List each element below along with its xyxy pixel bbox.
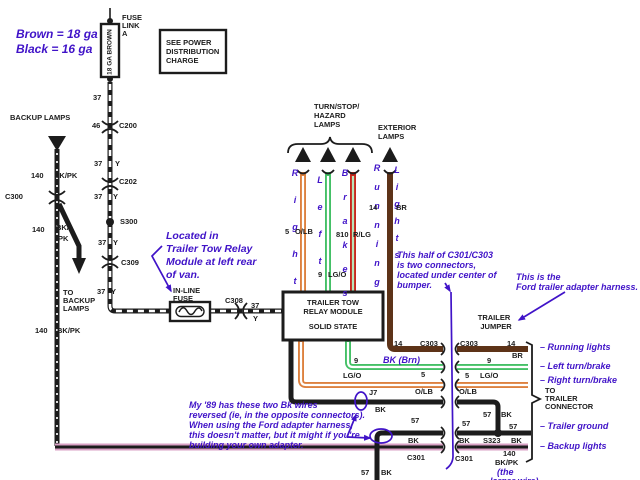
wire-label: O/LB <box>295 227 313 236</box>
annotation-text: Module at left rear <box>166 256 256 268</box>
connector-c303-c301 <box>441 343 459 453</box>
wire-label: 140 <box>35 326 48 335</box>
annotation-text: – Right turn/brake <box>540 375 617 385</box>
annotation-text: building your own adapter. <box>189 440 304 450</box>
wire-label: BK <box>511 436 522 445</box>
wire-label: JUMPER <box>480 322 511 331</box>
annotation-text: located under center of <box>397 270 497 280</box>
splice-s300 <box>106 218 114 226</box>
annotation-text: of van. <box>166 269 200 281</box>
wire-label: BK <box>459 436 470 445</box>
annotation-text: When using the Ford adapter harness, <box>189 420 353 430</box>
trailer-connector-bracket <box>526 342 540 462</box>
wire-label: O/LB <box>459 387 477 396</box>
wire-label: 810 <box>336 230 349 239</box>
wire-label: LAMPS <box>63 304 89 313</box>
wire-label: BR <box>512 351 523 360</box>
wire-label: EXTERIOR <box>378 123 416 132</box>
annotation-text: This half of C301/C303 <box>397 250 493 260</box>
wire-label: C308 <box>225 296 243 305</box>
wire-label: TURN/STOP/ <box>314 102 359 111</box>
wire-label: DISTRIBUTION <box>166 47 219 56</box>
connector-split-line <box>446 292 453 469</box>
wire-label: TRAILER <box>478 313 511 322</box>
wire-label: 5 <box>285 227 289 236</box>
wire-label: 57 <box>361 468 369 477</box>
wire-label: 37 <box>251 301 259 310</box>
wire-label: S300 <box>120 217 138 226</box>
annotation-text: reversed (ie, in the opposite connectors… <box>189 410 365 420</box>
adapter-harness-arrow <box>519 292 565 320</box>
wire-label: BK <box>501 410 512 419</box>
wire-label: 37 <box>94 159 102 168</box>
wire-label: SOLID STATE <box>309 322 357 331</box>
annotation-text: My '89 has these two Bk wires <box>189 400 318 410</box>
wire-label: 37 <box>98 238 106 247</box>
wire-label: Y <box>113 238 118 247</box>
wire-label: J7 <box>369 388 377 397</box>
wire-label: PK <box>58 234 68 243</box>
wire-label: C309 <box>121 258 139 267</box>
wire-label: Y <box>115 159 120 168</box>
wire-label: CHARGE <box>166 56 199 65</box>
annotation-text: Trailer Tow Relay <box>166 243 252 255</box>
wire-label: C301 <box>455 454 473 463</box>
wire-label: C202 <box>119 177 137 186</box>
wire-label: 140 <box>503 449 516 458</box>
wire-label: 140 <box>32 225 45 234</box>
wire-label: 57 <box>411 416 419 425</box>
wire-label: CONNECTOR <box>545 402 593 411</box>
wire-label: BK <box>375 405 386 414</box>
wire-label: BK/PK <box>54 171 77 180</box>
wire-label: 9 <box>318 270 322 279</box>
wire-label: C301 <box>407 453 425 462</box>
wire-label: C303 <box>420 339 438 348</box>
wire-label: LG/O <box>480 371 498 380</box>
wire-label: BK <box>381 468 392 477</box>
wire-label: 14 <box>507 339 515 348</box>
wire-label: O/LB <box>415 387 433 396</box>
annotation-text: This is the <box>516 272 561 282</box>
wire-label: Y <box>253 314 258 323</box>
wiring-diagram: FUSELINKA18 GA BROWNSEE POWERDISTRIBUTIO… <box>0 0 640 480</box>
annotation-text: – Left turn/brake <box>540 361 611 371</box>
wire-label: 57 <box>483 410 491 419</box>
wire-label: 5 <box>421 370 425 379</box>
annotation-text: – Trailer ground <box>540 421 608 431</box>
wire-label: BR <box>396 203 407 212</box>
wire-label: C303 <box>460 339 478 348</box>
wire-label: BK <box>408 436 419 445</box>
wire-label: BK/ <box>56 223 69 232</box>
annotation-text: is two connectors, <box>397 260 476 270</box>
wire-label: C200 <box>119 121 137 130</box>
wire-label: Y <box>111 287 116 296</box>
annotation-text: BK (Brn) <box>383 355 420 365</box>
annotation-text: – Backup lights <box>540 441 607 451</box>
wire-label: LG/O <box>328 270 346 279</box>
wire-label: 14 <box>394 339 402 348</box>
annotation-text: Located in <box>166 230 219 242</box>
wire-direction-label: L e f t <box>316 167 324 275</box>
wire-label: HAZARD <box>314 111 346 120</box>
annotation-text: Ford trailer adapter harness. <box>516 282 638 292</box>
annotation-text: this doesn't matter, but it might if you… <box>189 430 360 440</box>
wire-label: S323 <box>483 436 501 445</box>
annotation-text: – Running lights <box>540 342 611 352</box>
wire-label: RELAY MODULE <box>303 307 362 316</box>
wire-label: BK/PK <box>57 326 80 335</box>
wire-label: TRAILER TOW <box>307 298 359 307</box>
wire-label: 37 <box>93 93 101 102</box>
wire-label: 9 <box>487 356 491 365</box>
wire-direction-label: L i g h t s <box>393 162 401 264</box>
wire-label: SEE POWER <box>166 38 211 47</box>
wire-label: LAMPS <box>378 132 404 141</box>
wire-direction-label: R u n n i n g <box>373 159 381 292</box>
wire-label: 37 <box>97 287 105 296</box>
annotation-text: Black = 16 ga <box>16 42 92 56</box>
annotation-text: Brown = 18 ga <box>16 27 98 41</box>
wire-label: 37 <box>94 192 102 201</box>
wire-label: LG/O <box>343 371 361 380</box>
wire-label: LAMPS <box>314 120 340 129</box>
wire-label: 140 <box>31 171 44 180</box>
wire-label: Y <box>113 192 118 201</box>
in-line-fuse <box>170 302 210 321</box>
annotation-text: bumper. <box>397 280 432 290</box>
to-backup-lamps-arrow <box>72 258 86 274</box>
wire-label: BK/PK <box>495 458 518 467</box>
wire-label: A <box>122 29 127 38</box>
wire-label: 57 <box>509 422 517 431</box>
wire-label: R/LG <box>353 230 371 239</box>
wire-label: 46 <box>92 121 100 130</box>
wire-label: 57 <box>462 419 470 428</box>
wire-label: 5 <box>465 371 469 380</box>
wire-label: C300 <box>5 192 23 201</box>
wire-label: FUSE <box>173 294 193 303</box>
wire-label: 9 <box>354 356 358 365</box>
fuse-link-gauge-label: 18 GA BROWN <box>107 29 114 75</box>
annotation-text: larger wire) <box>490 476 539 480</box>
backup-lamp-arrow <box>48 136 66 151</box>
wire-label: 14 <box>369 203 377 212</box>
wire-label: BACKUP LAMPS <box>10 113 70 122</box>
